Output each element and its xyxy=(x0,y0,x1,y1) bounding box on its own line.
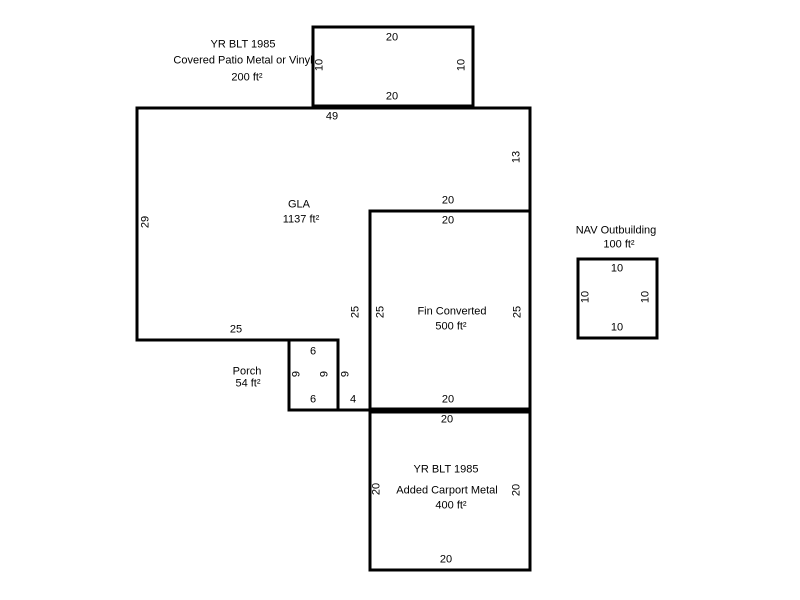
gla-dim-porch-side: 9 xyxy=(341,371,352,377)
gla-dim-top: 49 xyxy=(326,112,338,123)
property-sketch: YR BLT 1985 Covered Patio Metal or Vinyl… xyxy=(0,0,800,600)
gla-area-label: 1137 ft² xyxy=(283,215,320,226)
outbuilding-name-label: NAV Outbuilding xyxy=(576,226,657,237)
patio-area-label: 200 ft² xyxy=(231,73,262,84)
outbuilding-dim-left: 10 xyxy=(581,291,592,303)
porch-dim-right: 9 xyxy=(320,371,331,377)
porch-name-label: Porch xyxy=(233,367,262,378)
gla-dim-left: 29 xyxy=(141,216,152,228)
carport-dim-right: 20 xyxy=(512,484,523,496)
gla-name-label: GLA xyxy=(288,200,310,211)
carport-area-label: 400 ft² xyxy=(435,501,466,512)
patio-dim-right: 10 xyxy=(457,59,468,71)
sketch-shapes xyxy=(0,0,800,600)
porch-area-label: 54 ft² xyxy=(235,379,260,390)
fin-converted-dim-left: 25 xyxy=(376,306,387,318)
fin-converted-name-label: Fin Converted xyxy=(417,307,486,318)
carport-dim-left: 20 xyxy=(372,483,383,495)
porch-dim-left: 9 xyxy=(292,371,303,377)
outbuilding-dim-bottom: 10 xyxy=(611,323,623,334)
patio-dim-top: 20 xyxy=(386,33,398,44)
porch-dim-top: 6 xyxy=(310,347,316,358)
carport-name-label: Added Carport Metal xyxy=(396,486,498,497)
gla-dim-right: 13 xyxy=(512,151,523,163)
fin-converted-dim-top: 20 xyxy=(442,216,454,227)
carport-year-label: YR BLT 1985 xyxy=(413,465,478,476)
patio-year-label: YR BLT 1985 xyxy=(210,40,275,51)
fin-converted-dim-right: 25 xyxy=(513,306,524,318)
patio-dim-bottom: 20 xyxy=(386,92,398,103)
outbuilding-dim-right: 10 xyxy=(641,291,652,303)
patio-dim-left: 10 xyxy=(315,59,326,71)
outbuilding-dim-top: 10 xyxy=(611,264,623,275)
patio-name-label: Covered Patio Metal or Vinyl xyxy=(173,56,312,67)
carport-dim-bottom: 20 xyxy=(440,555,452,566)
outbuilding-area-label: 100 ft² xyxy=(603,240,634,251)
carport-dim-top: 20 xyxy=(441,415,453,426)
fin-converted-dim-bottom: 20 xyxy=(442,395,454,406)
gla-dim-bottom: 25 xyxy=(230,325,242,336)
gla-dim-notch-top: 20 xyxy=(442,196,454,207)
gla-dim-notch-bottom: 4 xyxy=(350,395,356,406)
fin-converted-area-label: 500 ft² xyxy=(435,322,466,333)
porch-dim-bottom: 6 xyxy=(310,395,316,406)
gla-dim-notch-side: 25 xyxy=(351,306,362,318)
